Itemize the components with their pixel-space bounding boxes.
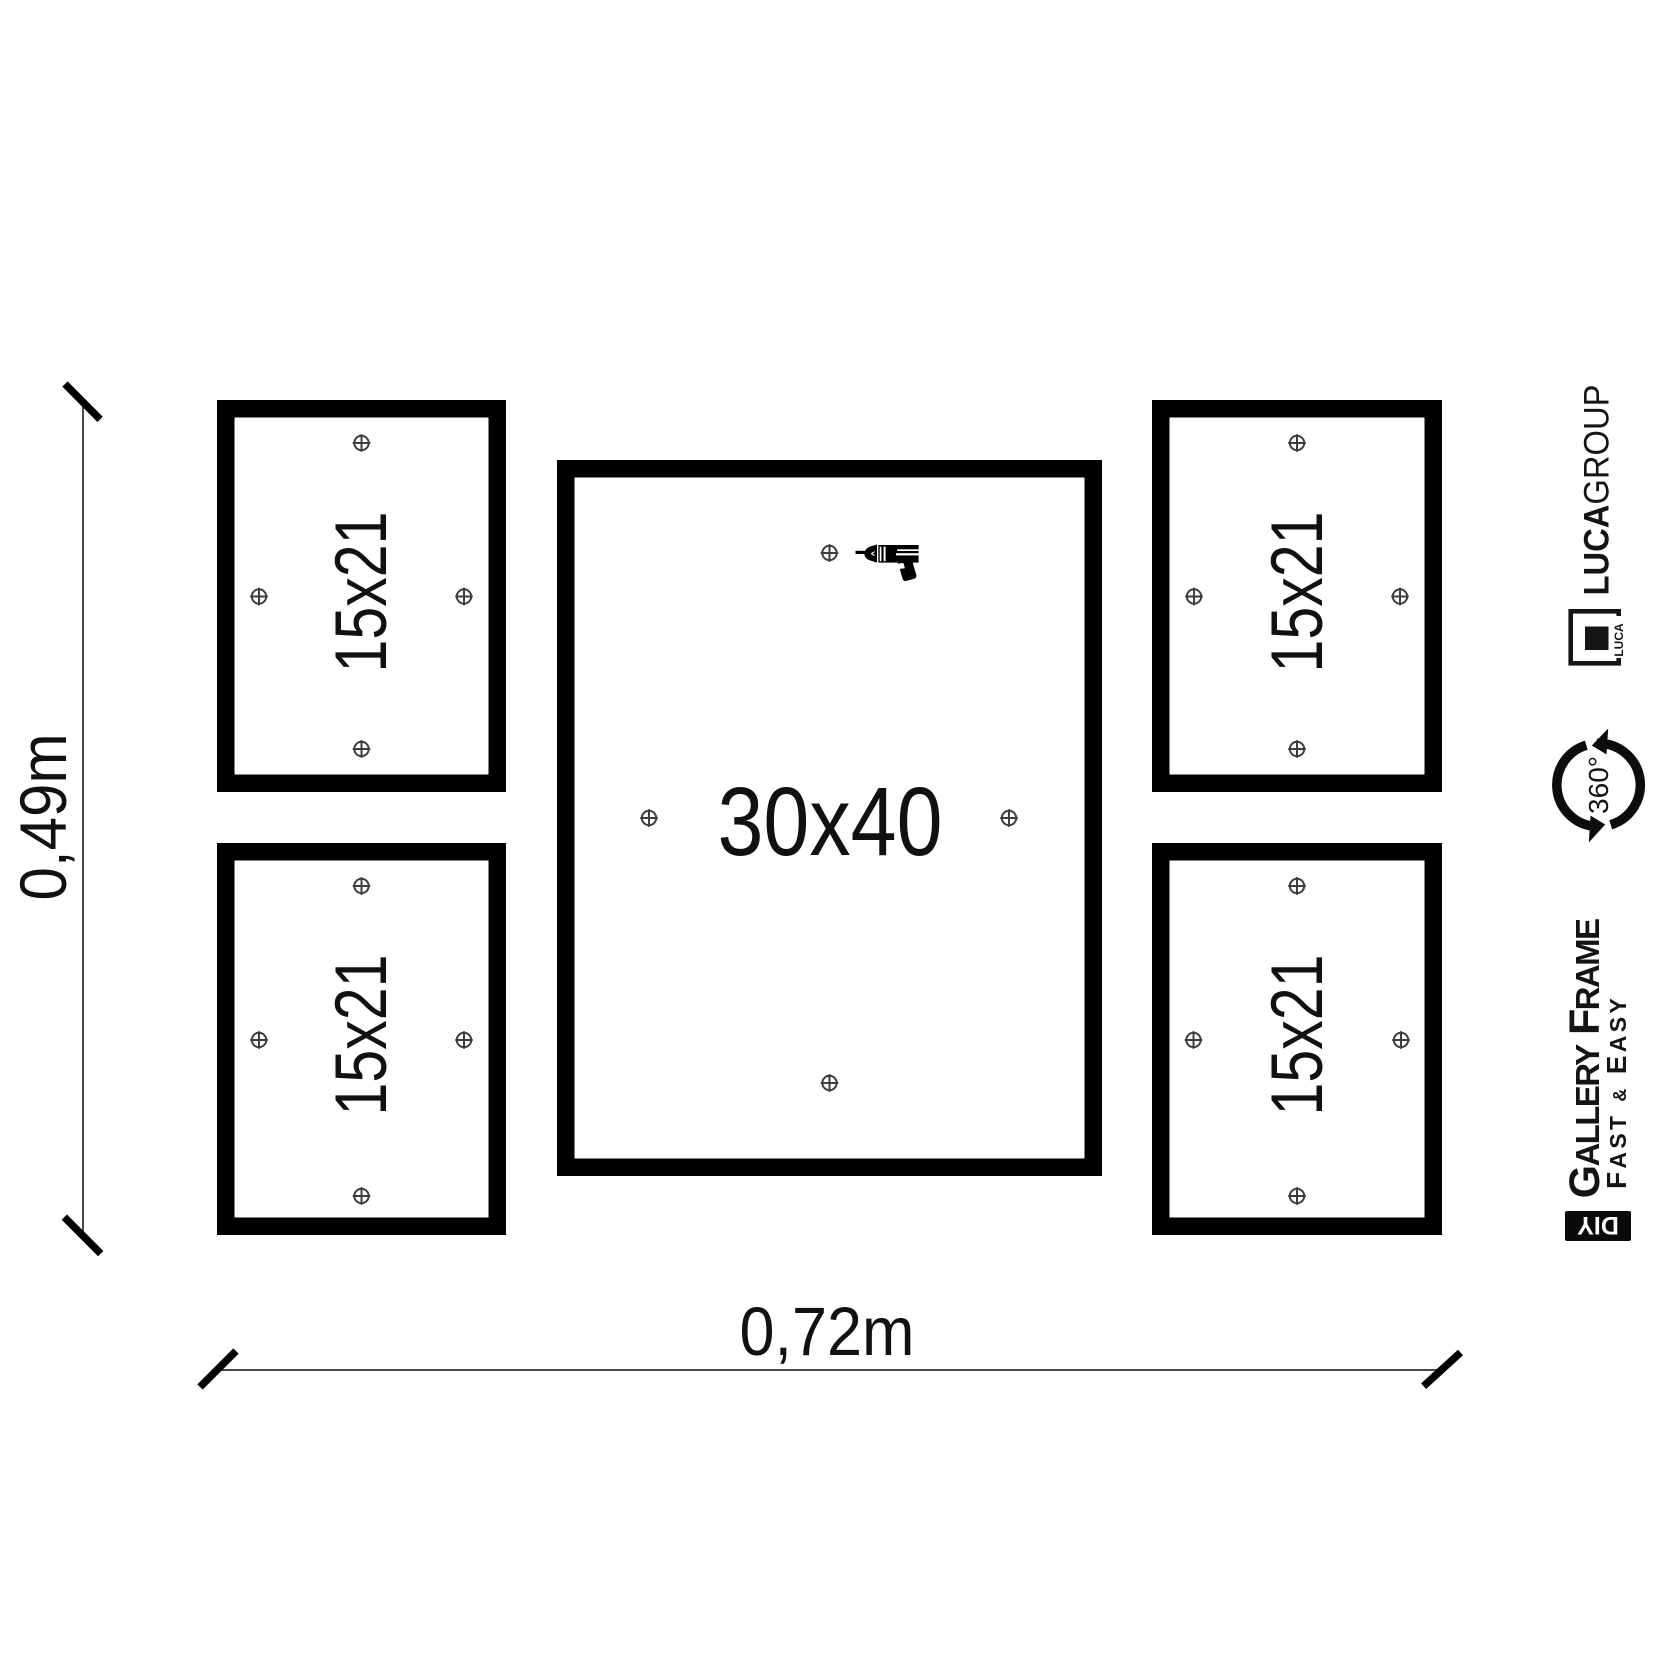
svg-text:360°: 360° — [1583, 756, 1614, 814]
svg-text:0,49m: 0,49m — [6, 734, 80, 901]
svg-text:DIY: DIY — [1577, 1211, 1619, 1239]
svg-text:15x21: 15x21 — [321, 512, 402, 673]
svg-text:LUCAGROUP: LUCAGROUP — [1578, 385, 1617, 596]
svg-text:15x21: 15x21 — [1257, 955, 1338, 1116]
svg-text:15x21: 15x21 — [1257, 512, 1338, 673]
svg-text:0,72m: 0,72m — [740, 1293, 915, 1370]
svg-text:LUCA: LUCA — [1612, 623, 1626, 657]
svg-text:30x40: 30x40 — [718, 767, 943, 876]
svg-text:15x21: 15x21 — [321, 955, 402, 1116]
